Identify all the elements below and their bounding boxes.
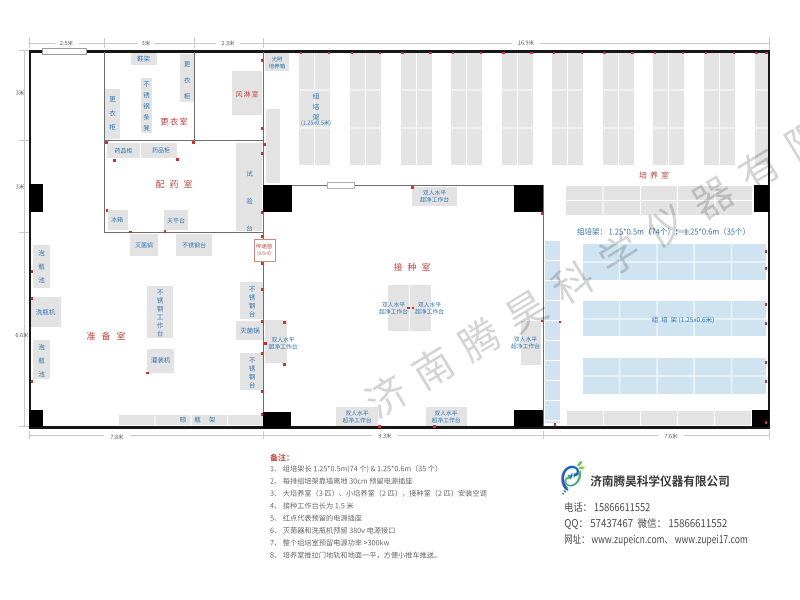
svg-text:H: H	[571, 473, 576, 480]
